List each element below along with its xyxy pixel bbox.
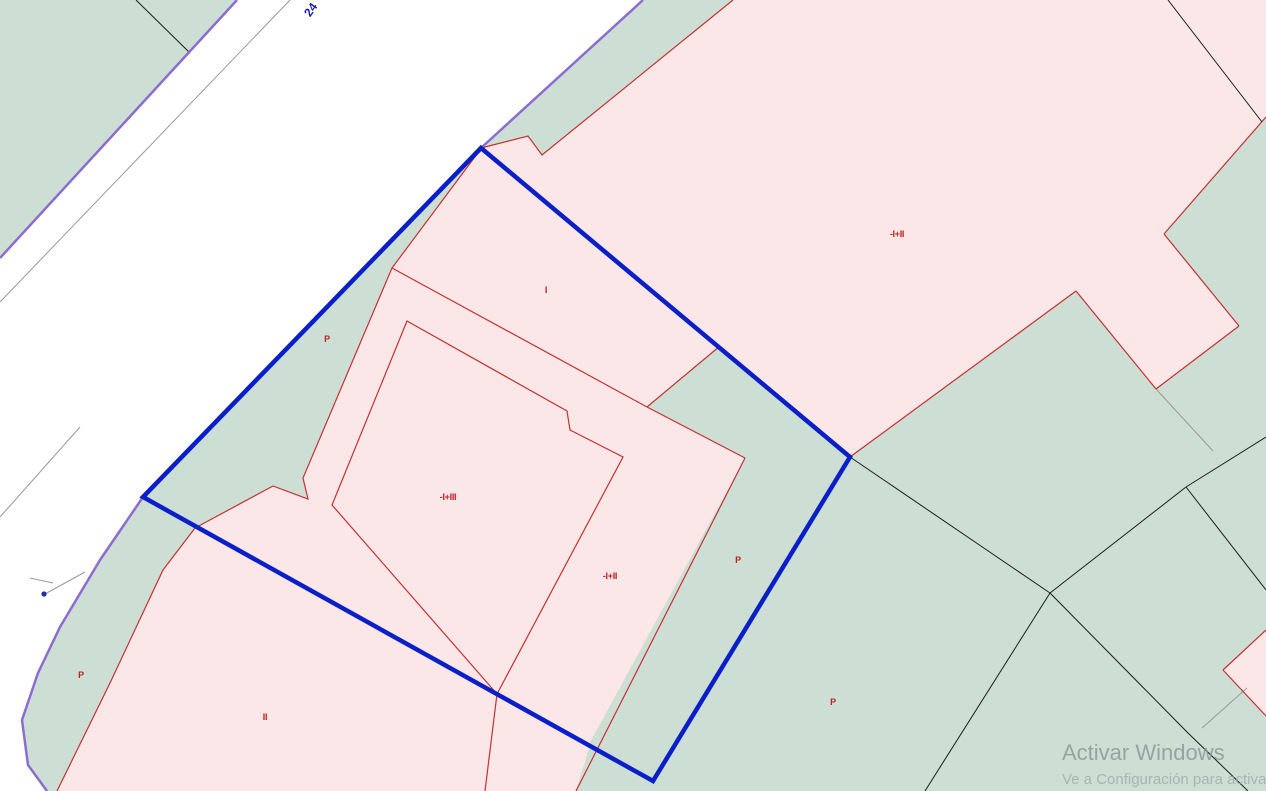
parcel-label: I xyxy=(545,285,547,295)
parcel-label: P xyxy=(735,555,741,565)
watermark-subtitle: Ve a Configuración para activar xyxy=(1062,771,1266,788)
parcel-label: P xyxy=(324,334,330,344)
watermark-title: Activar Windows xyxy=(1062,740,1225,765)
parcel-label: -I+III xyxy=(440,492,456,502)
parcel-label: P xyxy=(830,697,836,707)
parcel-label: -I+II xyxy=(890,229,904,239)
cadastral-map[interactable]: 24 -I+IIIP-I+III-I+IIPPIIP Activar Windo… xyxy=(0,0,1266,791)
parcel-label: P xyxy=(78,670,84,680)
parcel-label: -I+II xyxy=(603,571,617,581)
map-viewport[interactable]: 24 -I+IIIP-I+III-I+IIPPIIP Activar Windo… xyxy=(0,0,1266,791)
survey-marker-dot xyxy=(41,591,46,596)
parcel-label: II xyxy=(263,712,267,722)
